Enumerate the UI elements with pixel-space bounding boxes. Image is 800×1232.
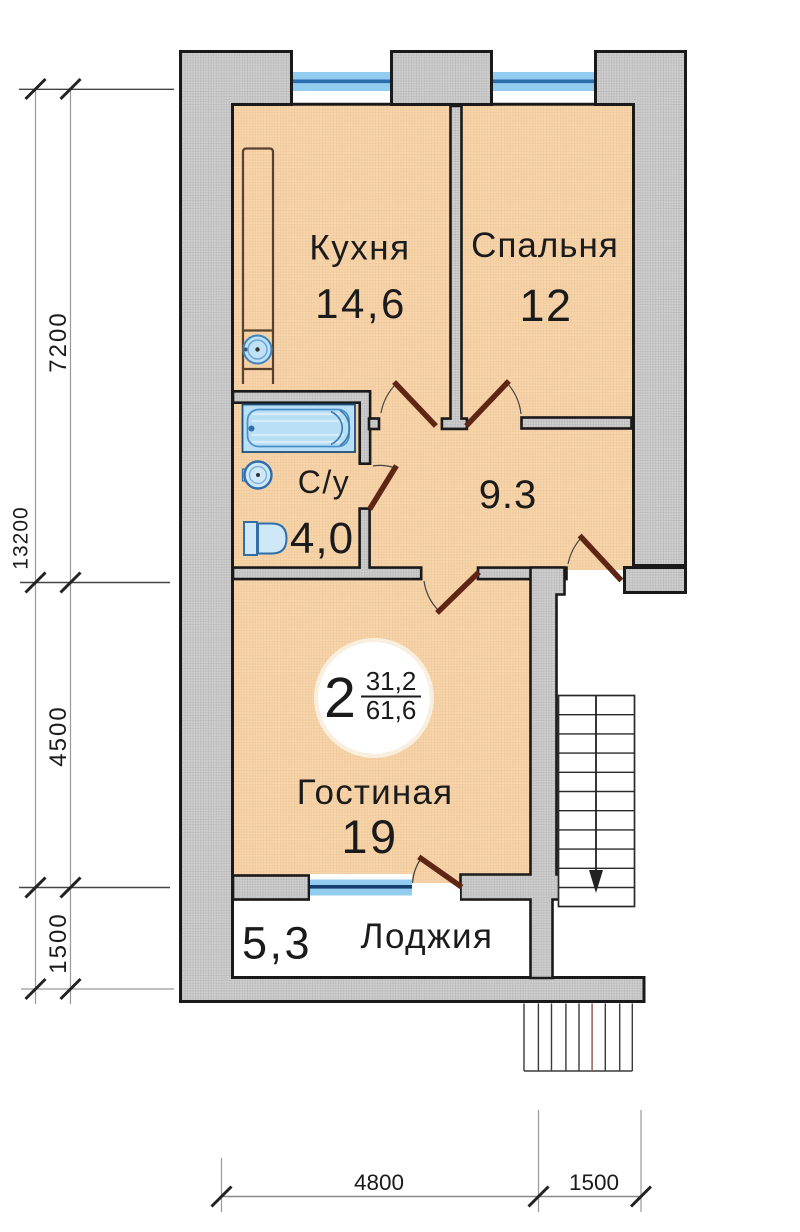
svg-text:4500: 4500 bbox=[45, 705, 72, 766]
svg-text:1500: 1500 bbox=[45, 912, 72, 973]
svg-text:4800: 4800 bbox=[354, 1170, 404, 1195]
svg-text:14,6: 14,6 bbox=[315, 280, 407, 327]
svg-text:Гостиная: Гостиная bbox=[297, 773, 454, 812]
svg-text:1500: 1500 bbox=[569, 1170, 619, 1195]
svg-text:Спальня: Спальня bbox=[471, 226, 619, 265]
svg-text:Кухня: Кухня bbox=[309, 229, 410, 268]
svg-text:13200: 13200 bbox=[10, 506, 33, 569]
svg-text:С/у: С/у bbox=[298, 464, 351, 500]
svg-text:2: 2 bbox=[324, 666, 356, 730]
svg-text:12: 12 bbox=[519, 280, 572, 331]
svg-text:7200: 7200 bbox=[45, 311, 72, 372]
svg-text:4,0: 4,0 bbox=[290, 514, 354, 563]
svg-text:31,2: 31,2 bbox=[366, 666, 417, 696]
svg-text:61,6: 61,6 bbox=[366, 695, 417, 725]
svg-text:19: 19 bbox=[341, 810, 398, 863]
svg-text:9.3: 9.3 bbox=[479, 473, 538, 517]
svg-text:5,3: 5,3 bbox=[242, 918, 312, 969]
svg-text:Лоджия: Лоджия bbox=[360, 917, 493, 956]
